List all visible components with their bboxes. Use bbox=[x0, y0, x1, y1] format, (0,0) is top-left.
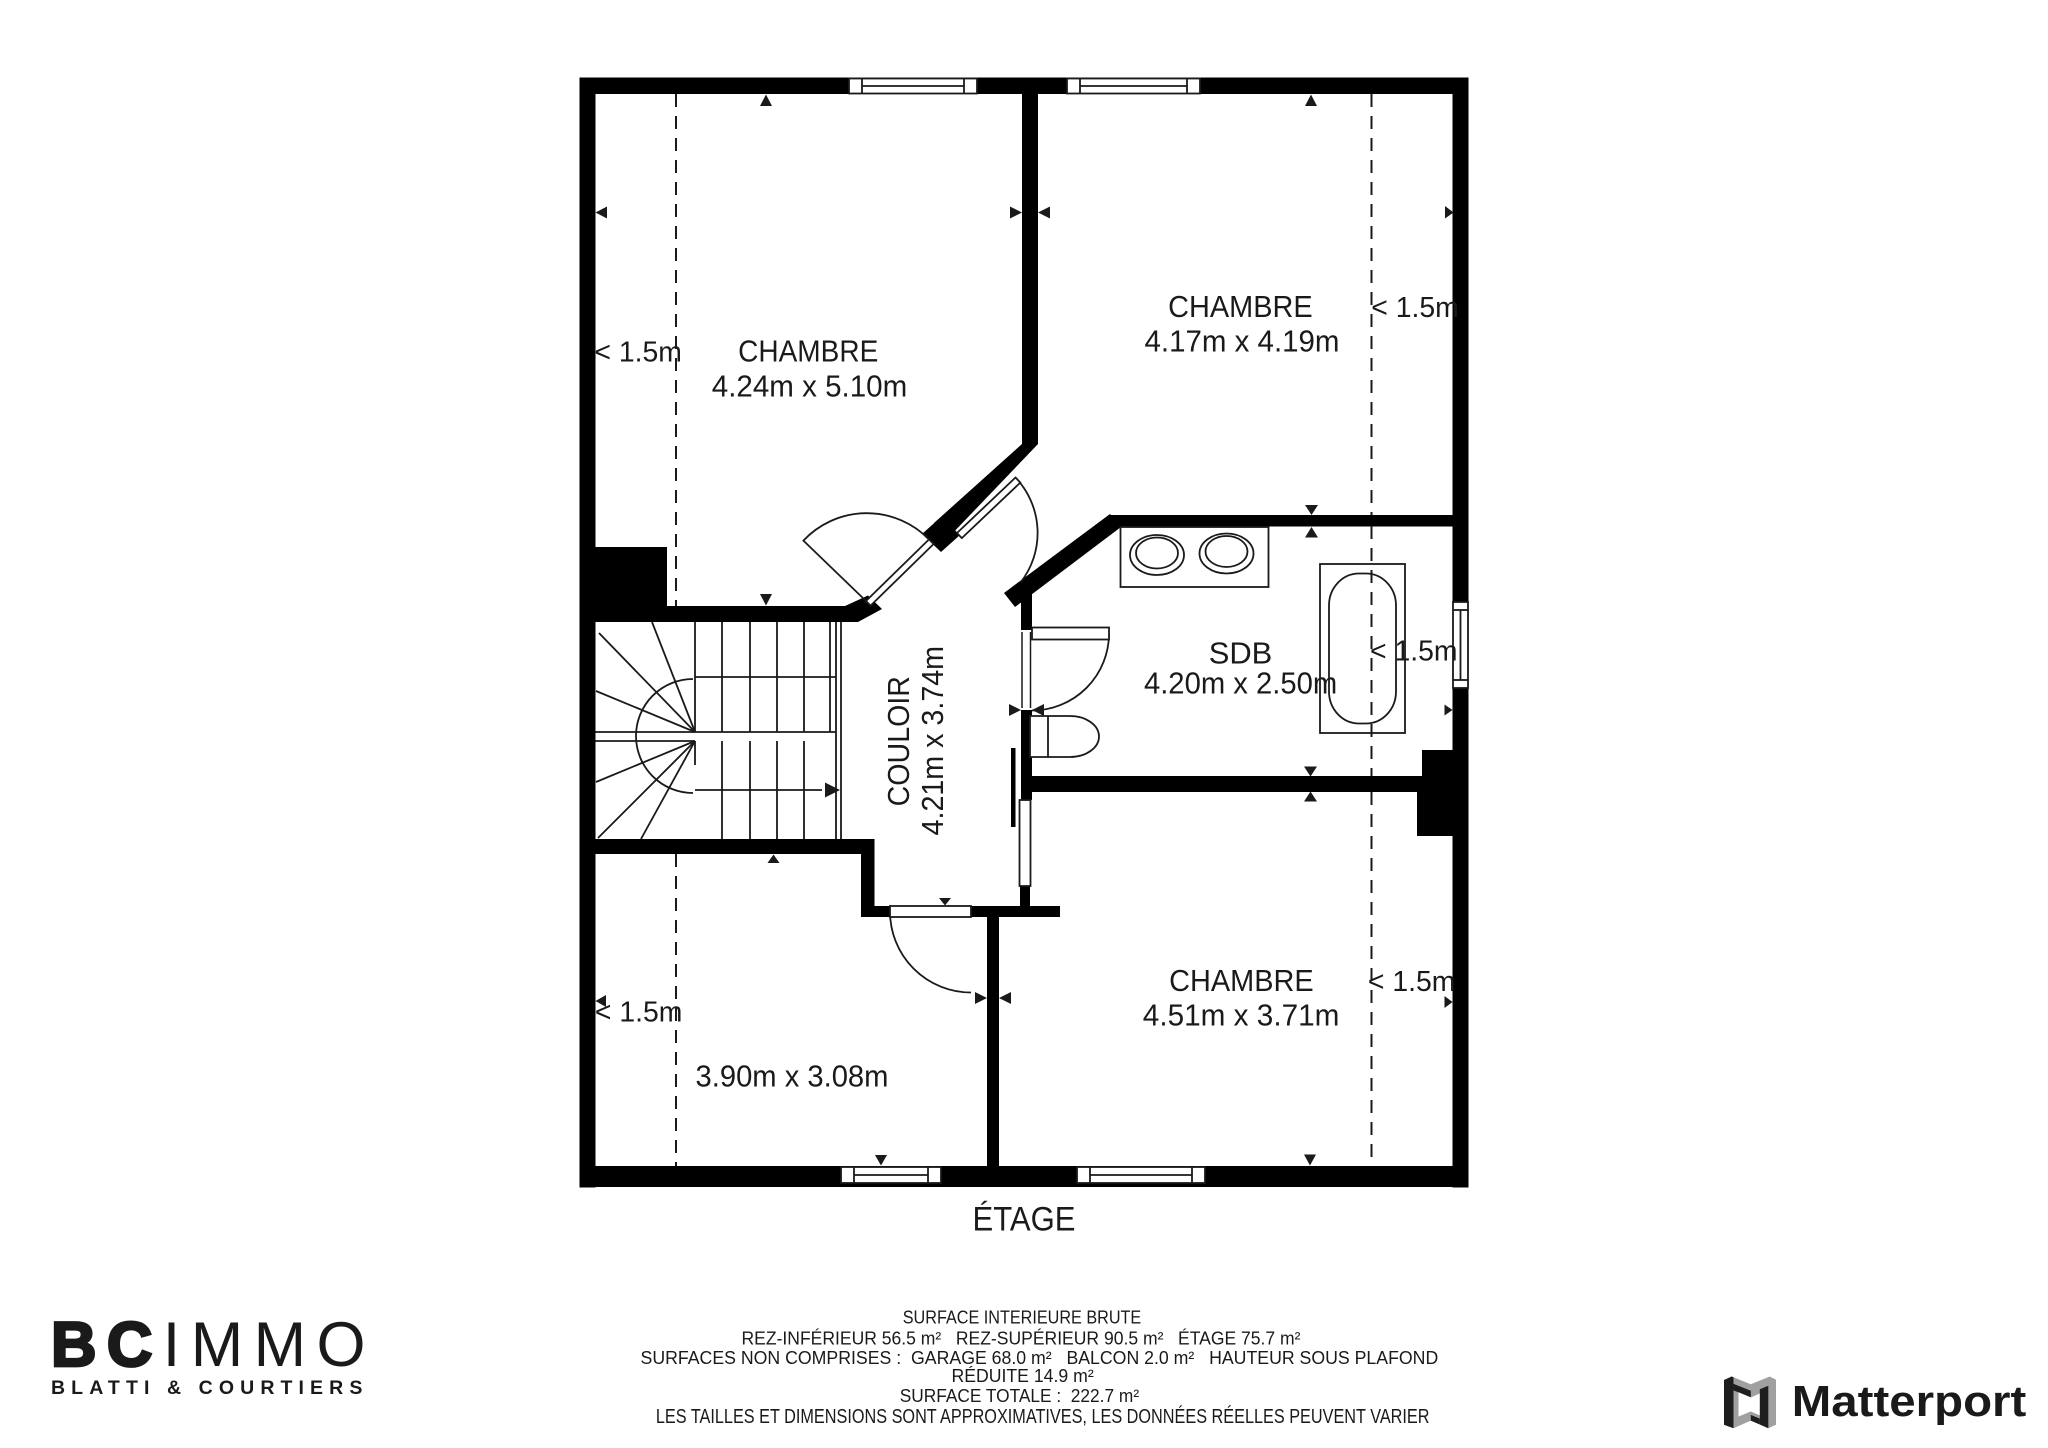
svg-text:CHAMBRE: CHAMBRE bbox=[738, 334, 878, 369]
svg-text:SURFACE INTERIEURE BRUTE: SURFACE INTERIEURE BRUTE bbox=[903, 1308, 1142, 1328]
svg-text:3.90m x 3.08m: 3.90m x 3.08m bbox=[696, 1059, 889, 1094]
svg-text:SURFACE TOTALE : 222.7 m²: SURFACE TOTALE : 222.7 m² bbox=[900, 1386, 1139, 1406]
svg-text:4.24m x 5.10m: 4.24m x 5.10m bbox=[712, 369, 908, 404]
svg-text:4.20m x 2.50m: 4.20m x 2.50m bbox=[1144, 666, 1337, 701]
svg-text:< 1.5m: < 1.5m bbox=[594, 337, 682, 369]
svg-text:Matterport: Matterport bbox=[1792, 1377, 2027, 1426]
svg-text:CHAMBRE: CHAMBRE bbox=[1168, 289, 1313, 324]
svg-text:REZ-INFÉRIEUR 56.5 m² REZ-SU: REZ-INFÉRIEUR 56.5 m² REZ-SUPÉRIEUR 90.5… bbox=[742, 1329, 1301, 1349]
svg-text:RÉDUITE 14.9 m²: RÉDUITE 14.9 m² bbox=[951, 1366, 1093, 1386]
svg-text:4.21m x 3.74m: 4.21m x 3.74m bbox=[915, 646, 950, 836]
svg-text:BLATTI & COURTIERS: BLATTI & COURTIERS bbox=[51, 1377, 368, 1399]
svg-text:BCIMMO: BCIMMO bbox=[51, 1310, 376, 1380]
svg-text:CHAMBRE: CHAMBRE bbox=[1169, 963, 1314, 998]
svg-text:4.17m x 4.19m: 4.17m x 4.19m bbox=[1145, 323, 1340, 358]
svg-text:< 1.5m: < 1.5m bbox=[1371, 292, 1459, 324]
svg-text:< 1.5m: < 1.5m bbox=[595, 996, 683, 1028]
svg-text:LES TAILLES ET DIMENSIONS SONT: LES TAILLES ET DIMENSIONS SONT APPROXIMA… bbox=[656, 1405, 1430, 1428]
svg-text:ÉTAGE: ÉTAGE bbox=[973, 1200, 1076, 1239]
svg-text:< 1.5m: < 1.5m bbox=[1368, 966, 1456, 998]
svg-text:4.51m x 3.71m: 4.51m x 3.71m bbox=[1143, 998, 1340, 1033]
svg-text:< 1.5m: < 1.5m bbox=[1370, 636, 1458, 668]
svg-text:COULOIR: COULOIR bbox=[881, 676, 916, 806]
